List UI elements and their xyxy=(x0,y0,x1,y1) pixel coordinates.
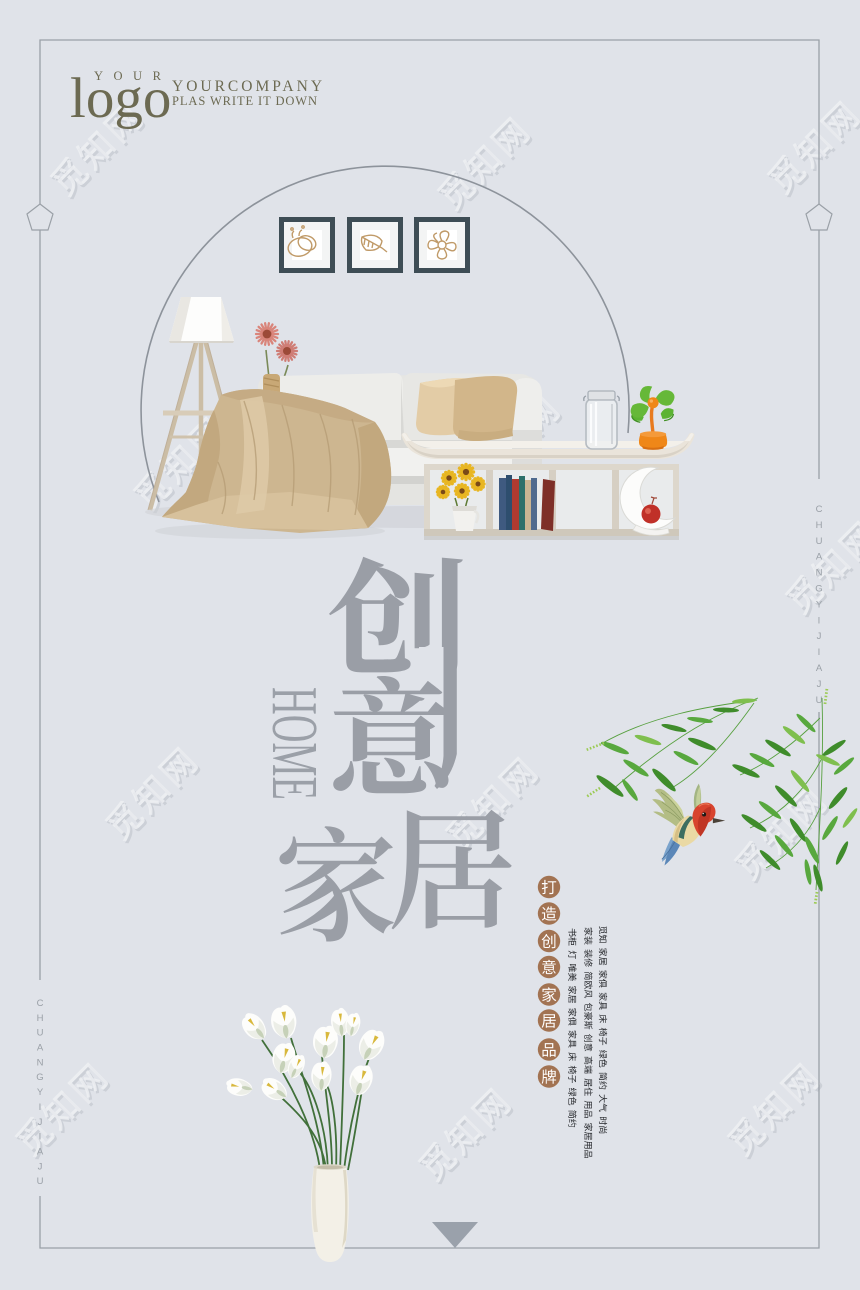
svg-text:A: A xyxy=(816,663,823,674)
svg-text:YOUR: YOUR xyxy=(94,69,171,83)
svg-text:A: A xyxy=(816,552,823,563)
svg-text:HOME: HOME xyxy=(258,687,331,800)
svg-text:H: H xyxy=(37,1013,44,1024)
svg-text:N: N xyxy=(37,1057,44,1068)
svg-text:YOURCOMPANY: YOURCOMPANY xyxy=(172,78,325,95)
svg-text:A: A xyxy=(37,1043,44,1054)
svg-text:J: J xyxy=(38,1161,43,1172)
svg-text:U: U xyxy=(816,536,823,547)
svg-text:C: C xyxy=(816,504,823,515)
svg-text:I: I xyxy=(39,1132,42,1143)
svg-text:H: H xyxy=(816,520,823,531)
svg-text:I: I xyxy=(39,1102,42,1113)
svg-text:N: N xyxy=(816,568,823,579)
svg-text:Y: Y xyxy=(37,1087,44,1098)
svg-text:J: J xyxy=(817,631,822,642)
svg-text:U: U xyxy=(37,1176,44,1187)
svg-text:G: G xyxy=(815,584,822,595)
svg-text:Y: Y xyxy=(816,599,823,610)
svg-text:U: U xyxy=(816,695,823,706)
svg-text:C: C xyxy=(37,998,44,1009)
svg-text:I: I xyxy=(818,647,821,658)
svg-text:PLAS WRITE IT DOWN: PLAS WRITE IT DOWN xyxy=(172,94,318,108)
svg-text:J: J xyxy=(817,679,822,690)
svg-text:U: U xyxy=(37,1028,44,1039)
svg-text:I: I xyxy=(818,615,821,626)
svg-text:G: G xyxy=(36,1072,43,1083)
svg-text:J: J xyxy=(38,1117,43,1128)
svg-text:A: A xyxy=(37,1147,44,1158)
